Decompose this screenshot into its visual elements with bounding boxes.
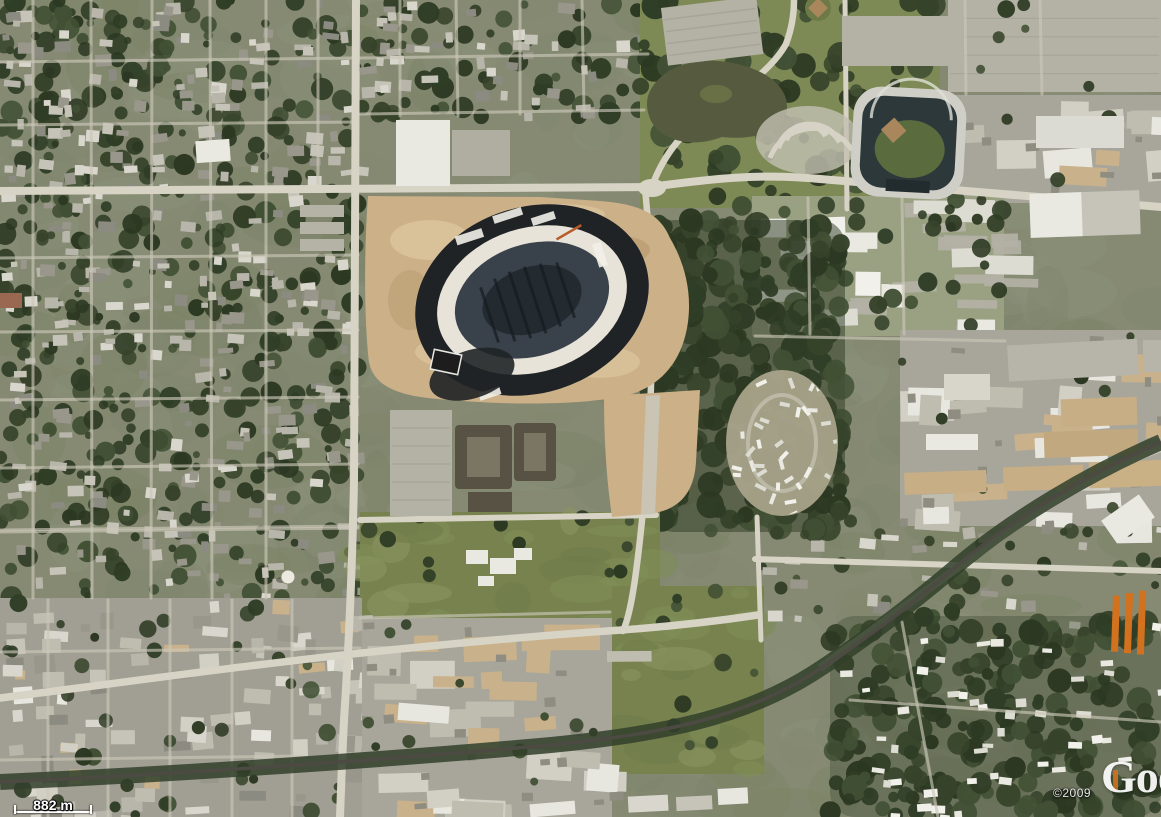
interchange (638, 179, 666, 197)
ballpark-north-parking (842, 16, 964, 66)
texture-ne-parking (948, 0, 1161, 92)
ne-warehouse-1 (1036, 116, 1124, 148)
ew-arterial-west (0, 187, 650, 191)
texture-ne-industrial (935, 95, 1161, 203)
map-scale-bar: 882 m (14, 797, 92, 817)
e-mega-warehouse (1007, 339, 1139, 382)
rangers-ballpark (849, 76, 968, 201)
scale-label: 882 m (33, 797, 73, 813)
water-tower (281, 570, 295, 584)
aerial-imagery (0, 0, 1161, 817)
apartment-rows-west (300, 205, 344, 251)
google-logo-watermark: Google (1101, 754, 1161, 800)
north-parking-lot (661, 0, 763, 66)
scale-bar-tick-right (90, 805, 92, 814)
orange-container-rows (1111, 590, 1146, 655)
store-parking (452, 130, 510, 176)
copyright-label: ©2009 (1053, 786, 1091, 800)
school-building (195, 139, 230, 163)
brick-building (0, 293, 22, 308)
lake-island (700, 85, 732, 103)
scale-bar-tick-left (14, 805, 16, 814)
big-box-store (396, 120, 450, 186)
satellite-map-viewport[interactable]: 882 m ©2009 Google (0, 0, 1161, 817)
